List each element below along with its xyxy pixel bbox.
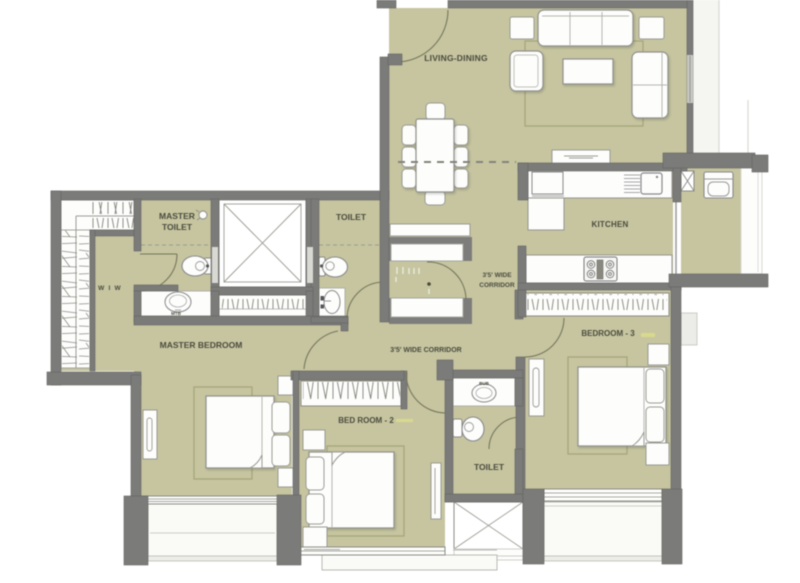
svg-text:CORRIDOR: CORRIDOR — [479, 282, 515, 289]
svg-text:3'5' WIDE: 3'5' WIDE — [482, 272, 512, 279]
svg-text:TOILET: TOILET — [162, 222, 193, 232]
svg-text:BUB: BUB — [479, 381, 489, 386]
svg-text:3'5' WIDE CORRIDOR: 3'5' WIDE CORRIDOR — [390, 347, 461, 354]
svg-text:TOILET: TOILET — [474, 462, 505, 472]
svg-text:TOILET: TOILET — [336, 212, 367, 222]
svg-text:KITCHEN: KITCHEN — [592, 220, 629, 229]
svg-text:BED ROOM - 2: BED ROOM - 2 — [338, 416, 394, 425]
svg-text:BEDROOM - 3: BEDROOM - 3 — [581, 329, 635, 338]
svg-text:W I W: W I W — [98, 285, 122, 292]
svg-text:MASTER BEDROOM: MASTER BEDROOM — [160, 340, 243, 350]
svg-text:LIVING-DINING: LIVING-DINING — [424, 53, 488, 63]
svg-text:MTB: MTB — [171, 311, 181, 316]
svg-text:MASTER: MASTER — [159, 211, 195, 221]
